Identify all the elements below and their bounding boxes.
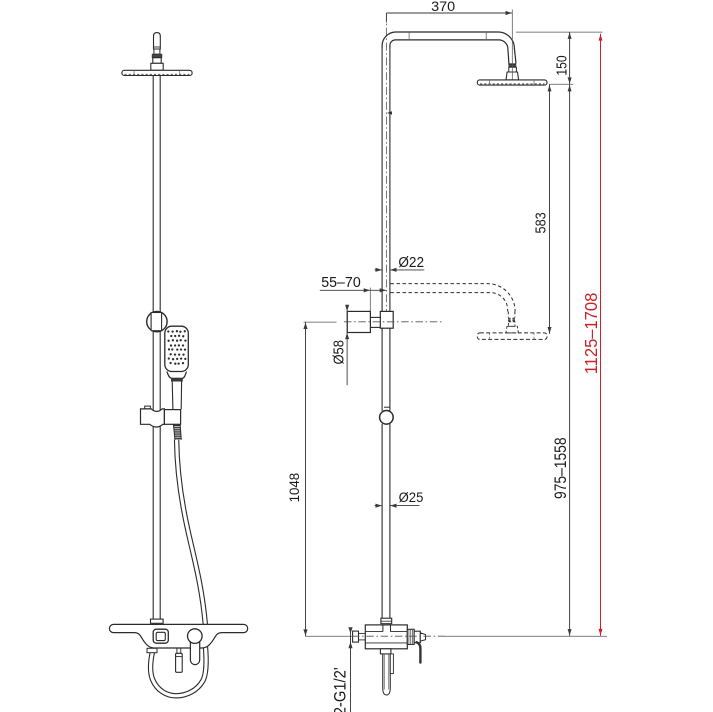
- svg-text:1125–1708: 1125–1708: [581, 293, 601, 375]
- svg-text:583: 583: [534, 212, 550, 233]
- svg-text:55–70: 55–70: [321, 274, 360, 291]
- svg-text:370: 370: [431, 0, 455, 15]
- svg-text:150: 150: [553, 55, 570, 75]
- svg-text:1048: 1048: [287, 472, 302, 502]
- svg-text:Ø22: Ø22: [398, 255, 424, 271]
- svg-text:Ø25: Ø25: [399, 490, 424, 506]
- svg-text:975–1558: 975–1558: [552, 437, 570, 499]
- svg-text:Ø58: Ø58: [330, 340, 347, 365]
- svg-text:2-G1/2': 2-G1/2': [331, 667, 349, 712]
